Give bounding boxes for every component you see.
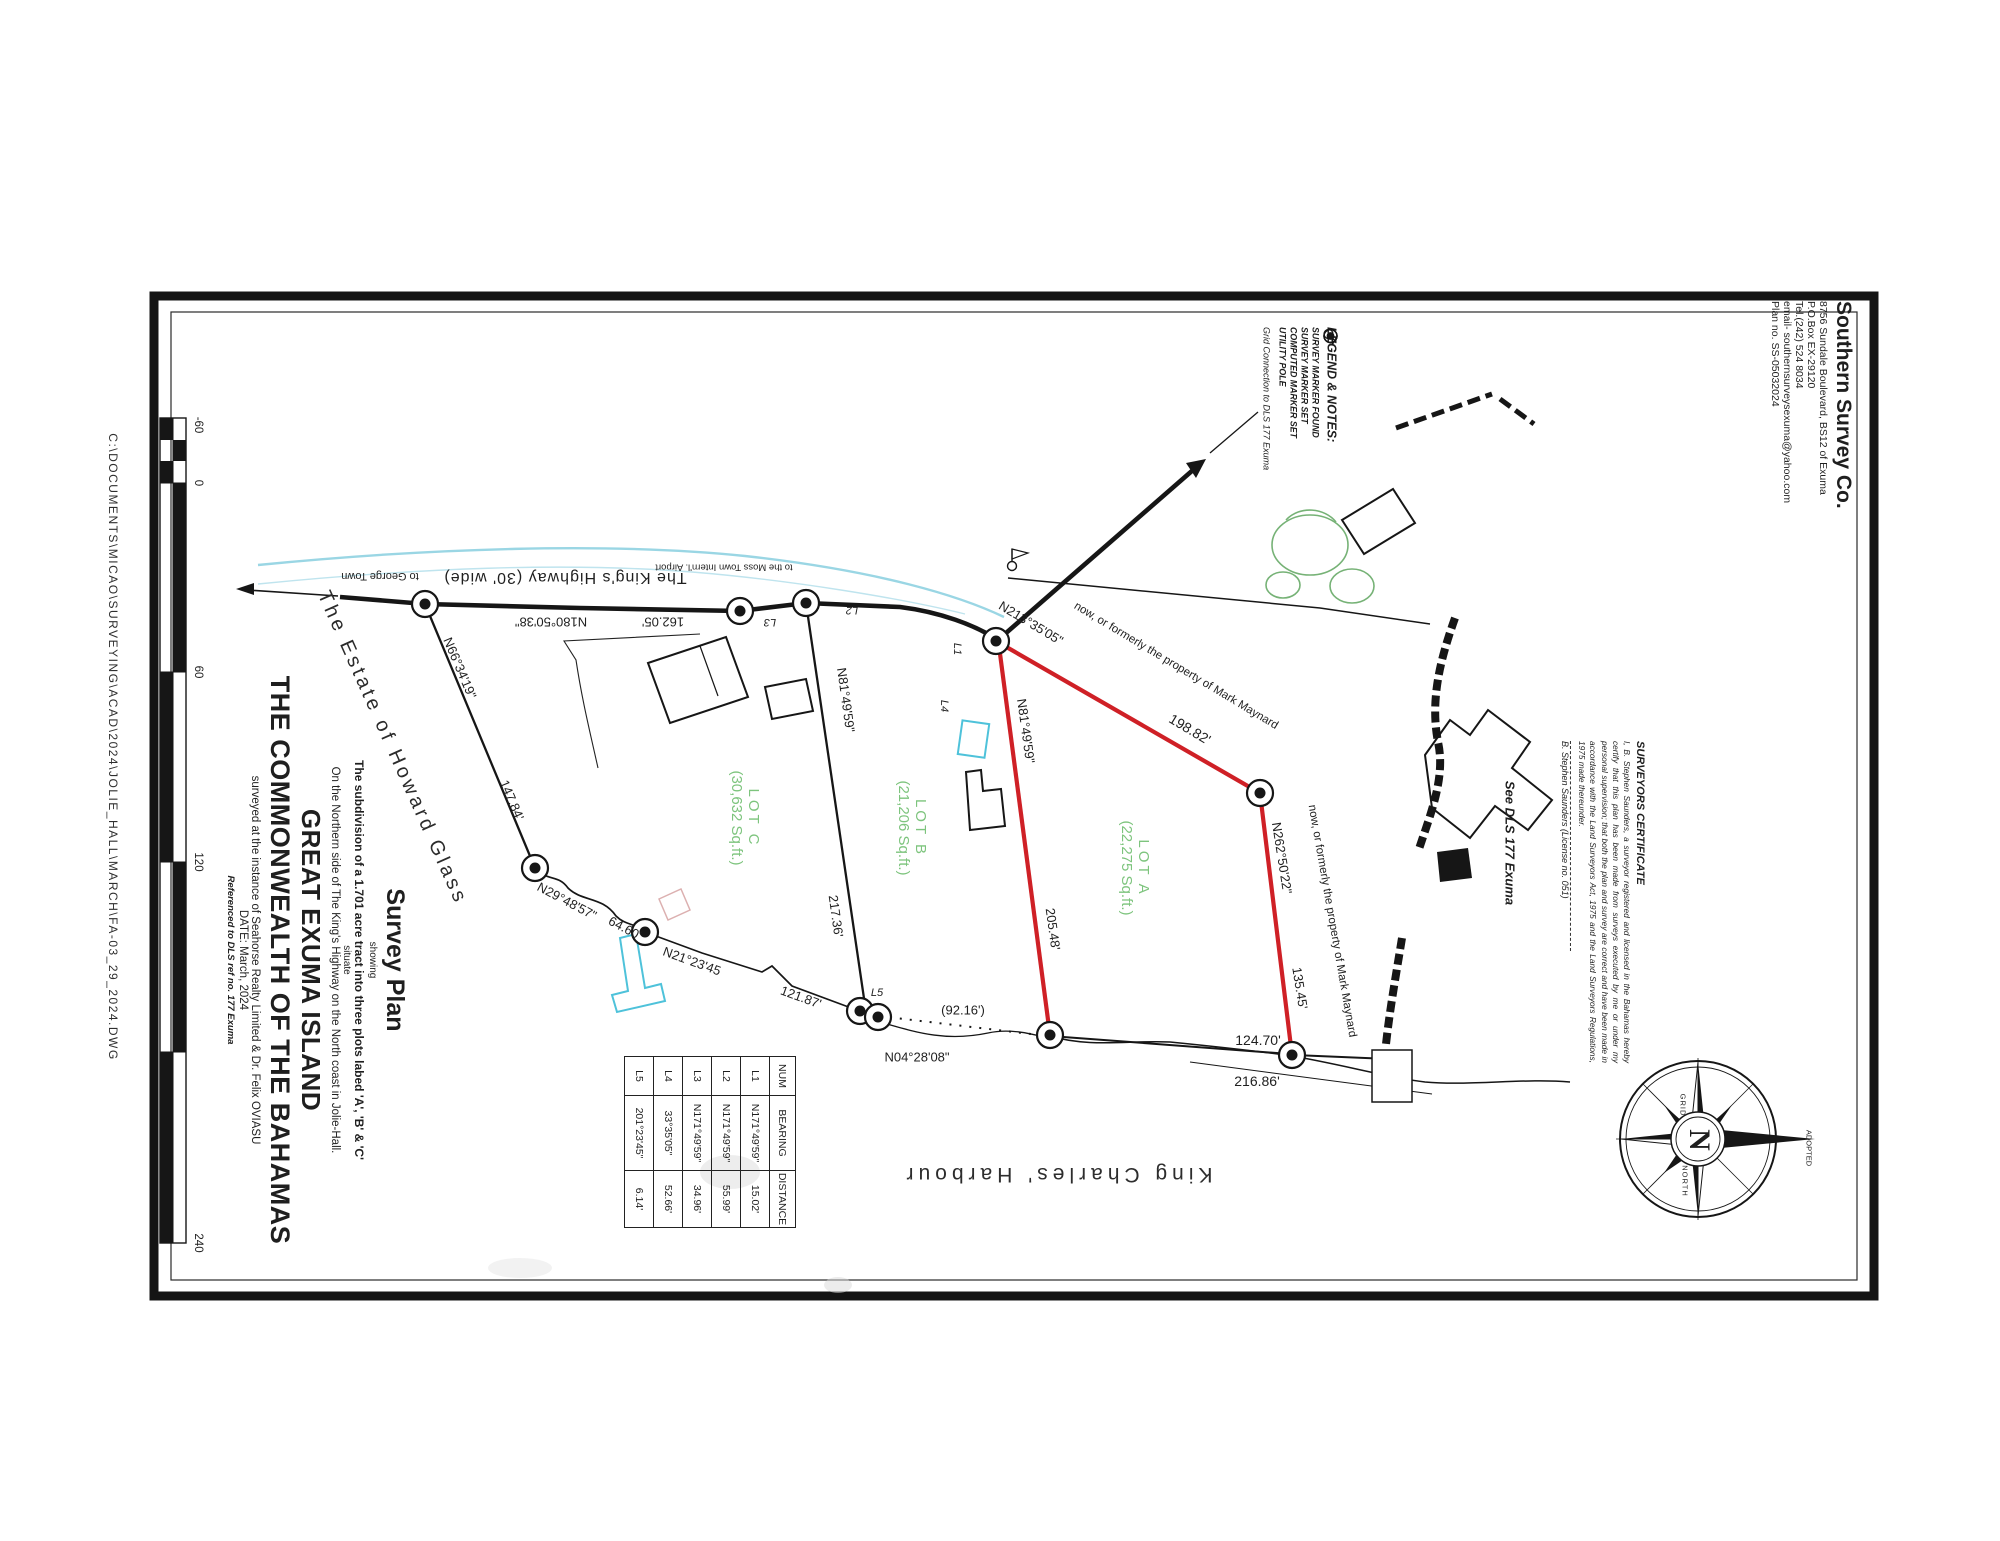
scale-tick-0: 0	[192, 480, 204, 486]
cell-l4-num: L4	[654, 1057, 683, 1096]
shore-tie-distance-label: (92.16')	[941, 1003, 985, 1018]
marker-l1-label: L1	[951, 643, 963, 655]
shoreline-east	[1050, 1036, 1570, 1083]
company-block: Southern Survey Co. 8756 Sundale Bouleva…	[1769, 301, 1855, 623]
shoreline-west-2	[645, 932, 862, 1012]
cell-l4-bearing: 33°35'05"	[654, 1096, 683, 1171]
table-row: L2 N171°49'59" 55.99'	[712, 1057, 741, 1228]
legend-item-found-label: SURVEY MARKER FOUND	[1311, 327, 1321, 438]
compass-n-label: N	[1682, 1129, 1716, 1151]
title-date: DATE: March, 2024	[237, 615, 249, 1305]
cell-l1-num: L1	[741, 1057, 770, 1096]
legend-item-utility: UTILITY POLE	[1278, 327, 1288, 503]
lotb-name: LOT B	[912, 723, 929, 933]
lotb-area: (21,206 Sq.ft.)	[895, 723, 912, 933]
neighbor-boundary-line	[1008, 578, 1430, 624]
company-address: 8756 Sundale Boulevard, BS12 of Exuma	[1817, 301, 1829, 623]
legend-block: LEGEND & NOTES: SURVEY MARKER FOUND SURV…	[1262, 327, 1339, 503]
title-situate: situate	[341, 615, 352, 1305]
title-island: GREAT EXUMA ISLAND	[295, 615, 326, 1305]
building-lotc-main	[648, 637, 748, 723]
legend-item-computed: COMPUTED MARKER SET	[1289, 327, 1299, 503]
certificate-body: I, B. Stephen Saunders, a surveyor regis…	[1576, 741, 1632, 1063]
title-client: surveyed at the instance of Seahorse Rea…	[249, 615, 261, 1305]
table-row: L3 N171°49'59" 34.96'	[683, 1057, 712, 1228]
utility-pole-icon	[1323, 327, 1339, 345]
dock-outline	[612, 934, 665, 1012]
building-lotb-black	[966, 770, 1005, 830]
faint-square-outline	[659, 889, 690, 920]
drawing-file-path: C:\DOCUMENTS\MICAO\SURVEYING\ACAD\2024\J…	[106, 433, 120, 1060]
legend-item-computed-label: COMPUTED MARKER SET	[1289, 327, 1299, 438]
lotc-area: (30,632 Sq.ft.)	[728, 713, 745, 923]
table-row: L5 201°23'45" 6.14'	[625, 1057, 654, 1228]
lotc-lotb-boundary	[806, 603, 866, 1012]
col-distance: DISTANCE	[770, 1171, 796, 1228]
tank-rectangle	[1372, 1050, 1412, 1102]
lotb-label: LOT B (21,206 Sq.ft.)	[895, 723, 929, 933]
title-reference: Referenced to DLS ref no. 177 Exuma	[225, 615, 236, 1305]
lotc-name: LOT C	[745, 713, 762, 923]
compass-north-label: NORTH	[1681, 1165, 1690, 1197]
building-lotc-small	[765, 679, 813, 719]
shoreline-mid	[880, 1022, 1048, 1038]
legend-item-set-label: SURVEY MARKER SET	[1300, 327, 1310, 424]
road-bearing-label: N180°50'38"	[515, 615, 587, 630]
cell-l3-distance: 34.96'	[683, 1171, 712, 1228]
col-bearing: BEARING	[770, 1096, 796, 1171]
stone-wall-chain-2	[1386, 938, 1402, 1044]
cell-l5-num: L5	[625, 1057, 654, 1096]
cell-l2-num: L2	[712, 1057, 741, 1096]
table-row: L1 N171°49'59" 15.02'	[741, 1057, 770, 1228]
to-airport-label: to the Moss Town Intern'l. Airport	[655, 562, 792, 573]
wall-dashed-1	[1396, 394, 1492, 428]
to-george-town-arrowhead	[236, 583, 254, 595]
cell-l4-distance: 52.66'	[654, 1171, 683, 1228]
scale-tick-240: 240	[192, 1233, 204, 1252]
company-tel: Tel.(242) 524 8034	[1793, 301, 1805, 623]
table-row: L4 33°35'05" 52.66'	[654, 1057, 683, 1228]
legend-note: Grid Connection to DLS 177 Exuma	[1262, 327, 1272, 503]
building-filled-east	[1437, 848, 1472, 882]
certificate-title: SURVEYORS CERTIFICATE	[1634, 741, 1646, 1063]
scale-bar	[160, 418, 186, 1243]
building-lotc-inner-line	[700, 646, 718, 696]
line-table: NUM BEARING DISTANCE L1 N171°49'59" 15.0…	[624, 1056, 796, 1228]
marker-l5-label: L5	[871, 987, 883, 999]
company-email: email- southernsurveysexuma@yahoo.com	[1781, 301, 1793, 623]
legend-title: LEGEND & NOTES:	[1325, 327, 1339, 503]
scale-tick--60: -60	[192, 417, 204, 434]
scanned-survey-plan-page: { "page": { "file_path": "C:\\DOCUMENTS\…	[0, 0, 2000, 1541]
title-subdivision: The subdivision of a 1.701 acre tract in…	[352, 615, 366, 1305]
legend-item-utility-label: UTILITY POLE	[1278, 327, 1288, 386]
cell-l2-bearing: N171°49'59"	[712, 1096, 741, 1171]
east-distance-4-label: 216.86'	[1234, 1073, 1280, 1089]
signature-line	[1570, 741, 1571, 951]
scale-tick-60: 60	[192, 666, 204, 679]
cell-l2-distance: 55.99'	[712, 1171, 741, 1228]
compass-adopted-label: ADOPTED	[1805, 1130, 1814, 1166]
company-name: Southern Survey Co.	[1831, 301, 1855, 623]
title-location: On the Northern side of The King's Highw…	[329, 615, 341, 1305]
compass-grid-label: GRID	[1679, 1094, 1688, 1117]
lotc-label: LOT C (30,632 Sq.ft.)	[728, 713, 762, 923]
tree-outlines	[1266, 510, 1374, 603]
to-george-town-label: to George Town	[341, 570, 418, 582]
road-bearing-leader	[564, 634, 700, 768]
road-continuation-line	[1210, 412, 1258, 453]
cell-l1-distance: 15.02'	[741, 1171, 770, 1228]
cell-l3-bearing: N171°49'59"	[683, 1096, 712, 1171]
cell-l5-distance: 6.14'	[625, 1171, 654, 1228]
lota-label: LOT A (22,275 Sq.ft.)	[1118, 763, 1152, 973]
shore-bearing-label: N04°28'08"	[884, 1050, 949, 1065]
marker-l3-label: L3	[764, 616, 776, 628]
legend-item-found: SURVEY MARKER FOUND	[1311, 327, 1321, 503]
marker-l2-label: L2	[846, 604, 858, 616]
lota-area: (22,275 Sq.ft.)	[1118, 763, 1135, 973]
scan-smudge-2	[488, 1258, 552, 1278]
scan-smudge-3	[824, 1277, 852, 1293]
building-complex-east	[1425, 710, 1552, 838]
king-charles-harbour-label: King Charles' Harbour	[902, 1162, 1213, 1186]
road-distance-label: 162.05'	[642, 615, 684, 630]
wall-dashed-2	[1500, 399, 1534, 424]
certificate-block: SURVEYORS CERTIFICATE I, B. Stephen Saun…	[1560, 741, 1646, 1063]
cell-l5-bearing: 201°23'45"	[625, 1096, 654, 1171]
title-country: THE COMMONWEALTH OF THE BAHAMAS	[264, 615, 295, 1305]
line-table-header-row: NUM BEARING DISTANCE	[770, 1057, 796, 1228]
east-distance-3-label: 124.70'	[1235, 1032, 1281, 1048]
building-lotb-cyan	[958, 720, 989, 757]
certificate-signature: B. Stephen Saunders (License no. 051)	[1560, 741, 1570, 1063]
company-plan-no: Plan no. SS-05032024	[1769, 301, 1781, 623]
lota-name: LOT A	[1135, 763, 1152, 973]
scale-tick-120: 120	[192, 852, 204, 871]
line-table-block: NUM BEARING DISTANCE L1 N171°49'59" 15.0…	[624, 1056, 796, 1224]
building-near-trees	[1342, 489, 1415, 554]
stone-wall-chain-1	[1418, 618, 1455, 852]
utility-pole-symbol	[1008, 549, 1029, 571]
col-num: NUM	[770, 1057, 796, 1096]
company-pobox: P.O.Box EX-29120	[1805, 301, 1817, 623]
cell-l3-num: L3	[683, 1057, 712, 1096]
cell-l1-bearing: N171°49'59"	[741, 1096, 770, 1171]
legend-item-set: SURVEY MARKER SET	[1300, 327, 1310, 503]
marker-l4-label: L4	[938, 700, 950, 712]
see-dls-note: See DLS 177 Exuma	[1503, 781, 1518, 905]
kings-highway-label: The King's Highway (30' wide)	[443, 568, 686, 586]
